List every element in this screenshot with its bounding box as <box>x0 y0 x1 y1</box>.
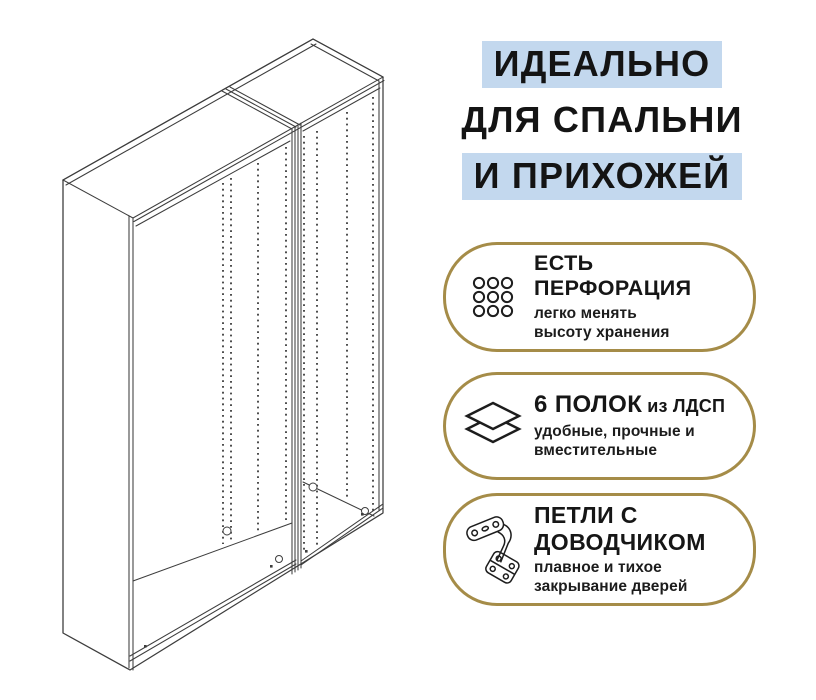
infographic-canvas: ИДЕАЛЬНО ДЛЯ СПАЛЬНИ И ПРИХОЖЕЙ ЕСТЬ ПЕР… <box>0 0 816 700</box>
headline-line-2: ДЛЯ СПАЛЬНИ <box>441 97 763 144</box>
feature-badge-hinges: ПЕТЛИ С ДОВОДЧИКОМ плавное и тихое закры… <box>443 493 756 606</box>
hinge-icon <box>463 512 523 588</box>
badge-text-block: ЕСТЬ ПЕРФОРАЦИЯ легко менять высоту хран… <box>534 251 692 343</box>
headline-highlight: ИДЕАЛЬНО <box>482 41 723 88</box>
perforation-grid-icon <box>463 276 523 318</box>
badge-title: 6 ПОЛОКиз ЛДСП <box>534 391 725 419</box>
badge-text-block: 6 ПОЛОКиз ЛДСП удобные, прочные и вмести… <box>534 391 725 461</box>
badge-subtitle: удобные, прочные и вместительные <box>534 423 725 461</box>
headline-line-1: ИДЕАЛЬНО <box>441 41 763 88</box>
wardrobe-illustration <box>0 0 440 700</box>
badge-subtitle: легко менять высоту хранения <box>534 305 692 343</box>
badge-title: ЕСТЬ ПЕРФОРАЦИЯ <box>534 251 692 301</box>
feature-badge-perforation: ЕСТЬ ПЕРФОРАЦИЯ легко менять высоту хран… <box>443 242 756 352</box>
headline-line-3: И ПРИХОЖЕЙ <box>441 153 763 200</box>
feature-badge-shelves: 6 ПОЛОКиз ЛДСП удобные, прочные и вмести… <box>443 372 756 480</box>
headline-highlight: И ПРИХОЖЕЙ <box>462 153 743 200</box>
badge-text-block: ПЕТЛИ С ДОВОДЧИКОМ плавное и тихое закры… <box>534 502 706 597</box>
headline: ИДЕАЛЬНО ДЛЯ СПАЛЬНИ И ПРИХОЖЕЙ <box>441 41 763 209</box>
shelves-layers-icon <box>463 401 523 451</box>
badge-subtitle: плавное и тихое закрывание дверей <box>534 559 706 597</box>
badge-title: ПЕТЛИ С ДОВОДЧИКОМ <box>534 502 706 555</box>
